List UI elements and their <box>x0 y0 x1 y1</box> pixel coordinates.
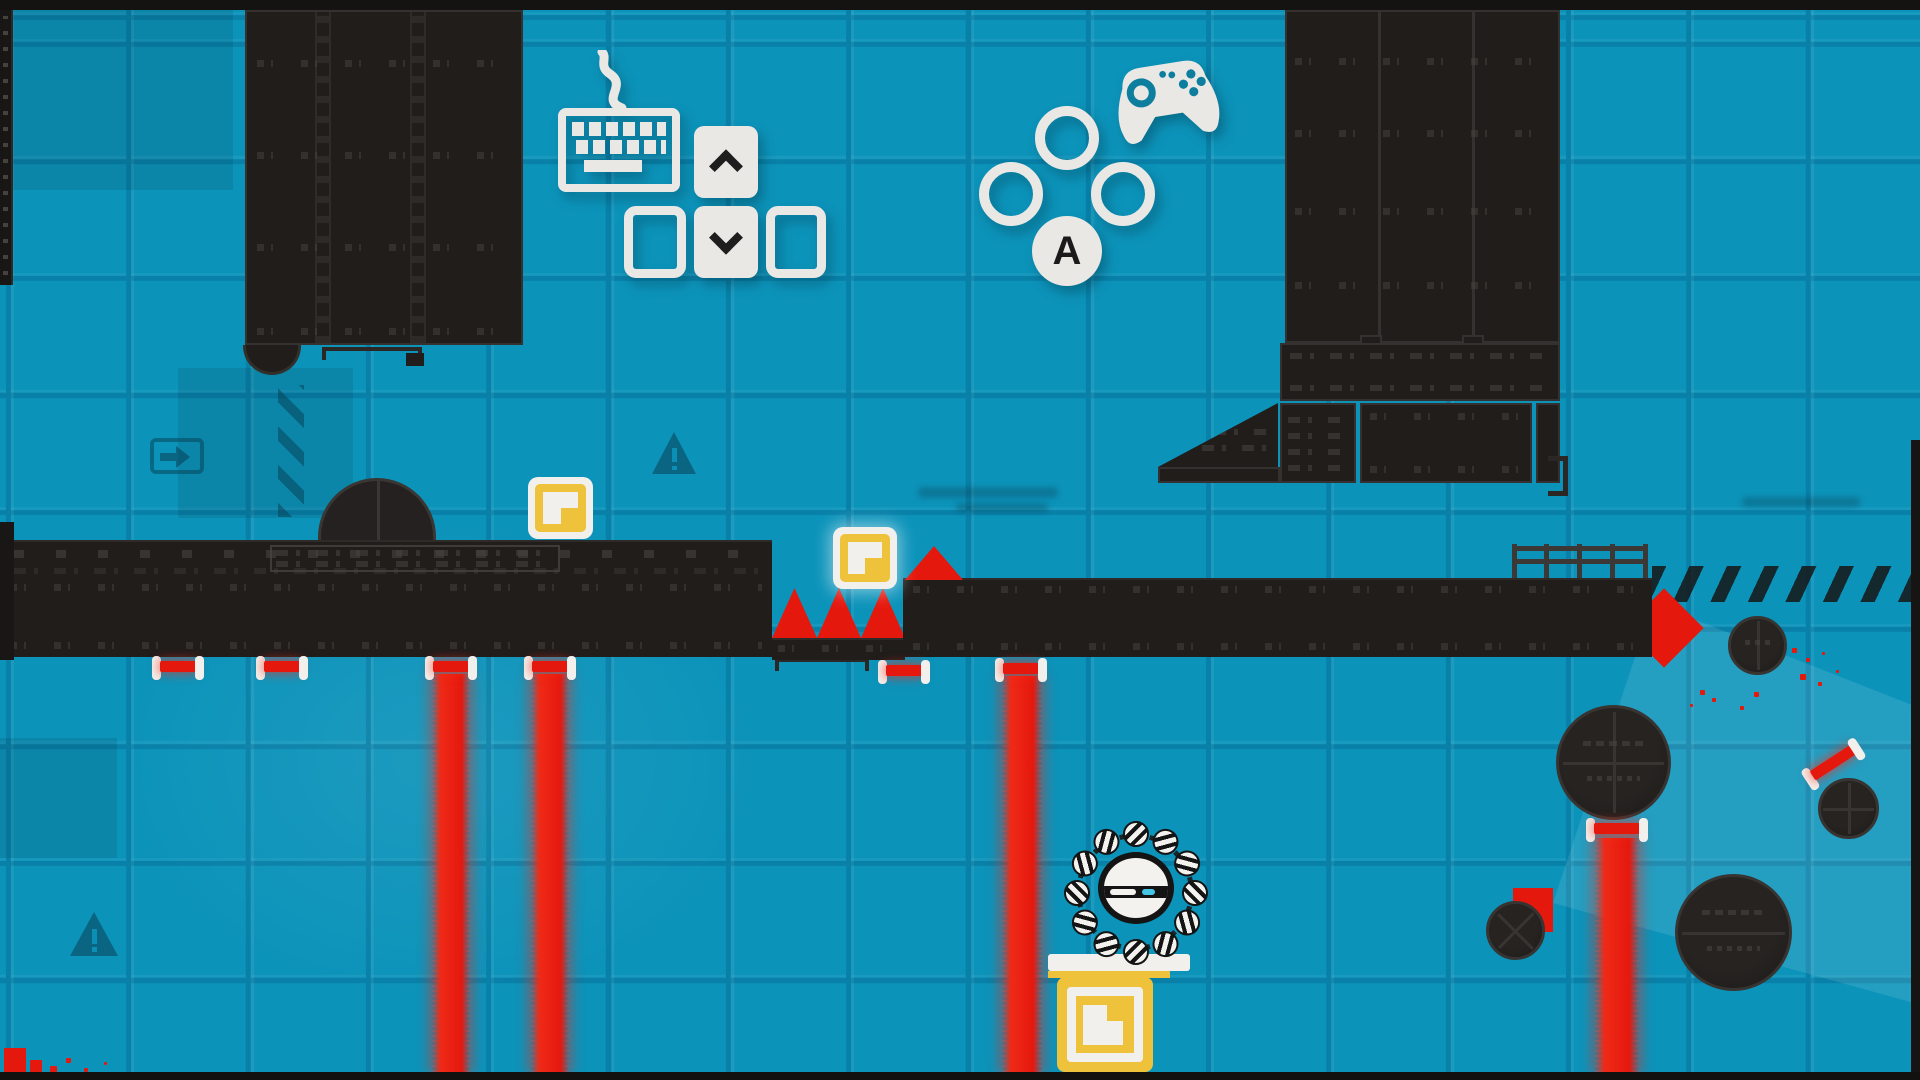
down-arrow-key <box>694 206 758 278</box>
laser-emitter-idle <box>256 656 308 682</box>
panel-marks <box>1370 466 1522 473</box>
panel-marks <box>276 550 554 556</box>
panel-marks <box>1295 282 1550 289</box>
wall-smudge <box>918 487 1058 498</box>
exclamation-bar <box>92 929 97 944</box>
rail-post <box>1577 544 1582 578</box>
wheel-ball <box>1182 880 1208 906</box>
chevron-up-icon <box>709 149 743 183</box>
spacebar-key <box>584 160 642 172</box>
vent-band <box>270 545 560 572</box>
game-viewport[interactable]: A <box>0 0 1920 1080</box>
laser-glow <box>532 661 568 672</box>
panel-marks <box>1288 465 1348 471</box>
panel-marks <box>1295 208 1550 215</box>
saw-wheel-small <box>1818 778 1879 839</box>
wall-smudge <box>956 503 1048 512</box>
dark-tile-patch <box>0 738 117 858</box>
top-left-structure <box>245 10 523 345</box>
rail-post <box>1512 544 1517 578</box>
spike <box>861 588 905 638</box>
warning-triangle-sign <box>70 912 118 956</box>
visor-dash-cyan <box>1142 889 1155 895</box>
yellow-box-pickup <box>833 527 897 589</box>
left-platform <box>0 540 772 657</box>
laser-emitter-idle <box>152 656 204 682</box>
wedge-base-bar <box>1158 467 1280 483</box>
character-body <box>1098 852 1174 924</box>
rail-bracket <box>406 353 424 366</box>
left-arrow-key <box>624 206 686 278</box>
panel-marks <box>1288 417 1348 423</box>
support-wedge <box>1158 403 1278 467</box>
laser-emitter-idle <box>878 660 930 686</box>
panel-marks <box>257 152 511 159</box>
spike <box>772 588 817 638</box>
panel-marks <box>778 645 899 652</box>
laser-glow <box>433 661 469 672</box>
exclamation-dot <box>92 947 97 952</box>
floor-bar <box>0 1072 1920 1080</box>
laser-beam <box>432 674 470 1072</box>
panel-marks <box>1290 353 1550 359</box>
crate-notch <box>1107 1005 1123 1021</box>
panel-marks <box>1288 449 1348 455</box>
top-right-band <box>1280 343 1560 401</box>
saw-seam <box>1563 762 1663 765</box>
keyboard-cable-icon <box>592 50 632 110</box>
laser-emitter <box>1586 818 1648 844</box>
panel-marks <box>10 584 762 591</box>
hanging-rail <box>775 658 869 672</box>
wall-smudge <box>1742 497 1860 507</box>
top-right-block <box>1280 403 1356 483</box>
saw-marks <box>1702 910 1764 915</box>
top-right-block <box>1360 403 1532 483</box>
spike-ledge <box>772 638 905 660</box>
arrow-head <box>176 446 190 468</box>
panel-marks <box>1295 130 1550 137</box>
laser-emitter <box>995 658 1047 684</box>
rail-post <box>1643 544 1648 578</box>
right-platform <box>903 578 1652 657</box>
gamepad-hint: A <box>975 52 1245 292</box>
laser-emitter <box>425 656 477 682</box>
panel-marks <box>1214 429 1270 435</box>
laser-beam <box>1002 676 1042 1072</box>
laser-glow <box>264 661 300 672</box>
rail-post <box>1610 544 1615 578</box>
panel-marks <box>257 328 511 335</box>
wall-hook <box>1548 456 1568 496</box>
saw-wheel-small <box>1486 901 1545 960</box>
saw-seam <box>1823 808 1874 811</box>
saw-wheel-large <box>1675 874 1792 991</box>
ceiling-bar <box>0 0 1920 10</box>
panel-marks <box>1290 385 1550 391</box>
saw-marks <box>1745 640 1770 645</box>
keyboard-hint <box>552 50 852 290</box>
key-row <box>576 140 666 154</box>
exclamation-dot <box>672 466 676 471</box>
wheel-ball <box>1064 880 1090 906</box>
panel-marks <box>1370 413 1522 420</box>
chevron-down-icon <box>709 221 743 255</box>
wheel-ball <box>1123 821 1149 847</box>
a-button-label: A <box>1053 229 1082 274</box>
arrow-bar <box>160 453 176 461</box>
saw-marks <box>1707 946 1760 951</box>
panel-marks <box>276 561 554 567</box>
exclamation-bar <box>672 448 676 462</box>
large-spike <box>905 546 963 580</box>
left-face-button <box>979 162 1043 226</box>
saw-seam <box>1757 621 1760 670</box>
warning-triangle-sign <box>652 432 696 474</box>
left-platform-cap <box>0 522 14 660</box>
wheel-character <box>1062 819 1210 967</box>
dark-tile-patch <box>178 368 353 518</box>
panel-marks <box>1288 433 1348 439</box>
arrow-sign <box>150 438 204 474</box>
laser-beam <box>1595 838 1639 1072</box>
spike <box>817 588 861 638</box>
top-right-structure <box>1285 10 1560 343</box>
right-wall-strip <box>1911 440 1920 1072</box>
panel-marks <box>1295 58 1550 65</box>
panel-marks <box>913 586 1642 593</box>
laser-glow <box>160 661 196 672</box>
up-arrow-key <box>694 126 758 198</box>
character-visor <box>1098 886 1174 898</box>
left-wall-strip <box>0 10 13 285</box>
key-row <box>572 122 666 136</box>
wheel-ball <box>1123 939 1149 965</box>
top-face-button <box>1035 106 1099 170</box>
box-notch <box>865 558 882 575</box>
saw-wheel-small <box>1728 616 1787 675</box>
laser-glow <box>1594 823 1640 834</box>
right-arrow-key <box>766 206 826 278</box>
panel-marks <box>10 642 762 649</box>
hazard-stripe-band <box>1652 566 1920 602</box>
visor-dash <box>1110 889 1136 895</box>
saw-seam <box>1682 932 1784 935</box>
gamepad-icon <box>1100 43 1234 161</box>
rail-post <box>1544 544 1549 578</box>
saw-wheel-large <box>1556 705 1671 820</box>
railing <box>1512 544 1648 578</box>
dark-tile-patch <box>0 10 233 190</box>
laser-glow <box>1003 663 1039 674</box>
saw-marks <box>1583 741 1644 746</box>
saw-marks <box>1587 776 1639 781</box>
laser-glow <box>886 665 922 676</box>
panel-marks <box>1202 445 1270 451</box>
keyboard-icon <box>558 108 680 192</box>
yellow-crate <box>1057 977 1153 1072</box>
laser-beam <box>531 674 569 1072</box>
panel-marks <box>257 244 511 251</box>
hazard-stripe-strip <box>278 385 304 517</box>
laser-emitter <box>524 656 576 682</box>
right-face-button <box>1091 162 1155 226</box>
panel-marks <box>913 643 1642 650</box>
box-notch <box>561 508 578 525</box>
yellow-box-pickup <box>528 477 593 539</box>
a-face-button: A <box>1032 216 1102 286</box>
panel-marks <box>257 60 511 67</box>
